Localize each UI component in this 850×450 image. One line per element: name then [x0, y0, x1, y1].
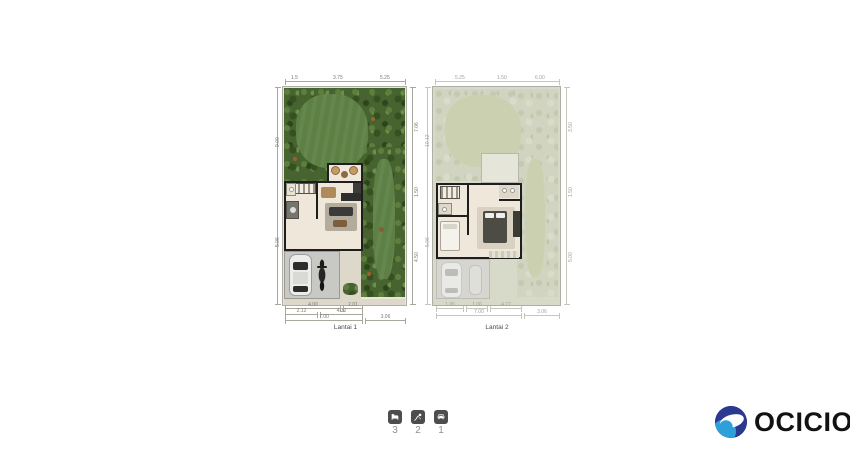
floorplan-canvas: 1.5 3.75 5.25 9.00 5.06 7.06 1.50 4.50 — [0, 0, 850, 450]
dimension-label: 1.06 — [472, 303, 482, 308]
dimension-label: 1.50 — [497, 76, 507, 81]
dimension-line: 2.12 — [285, 314, 318, 315]
sidewalk — [284, 299, 405, 305]
bathroom-count: 2 — [415, 426, 421, 436]
wardrobe — [513, 211, 520, 237]
dimension-line: 4.77 — [490, 308, 522, 309]
dimension-label: 1.5 — [291, 76, 298, 81]
dimension-label: 7.06 — [415, 122, 420, 132]
toilet — [510, 188, 515, 193]
toilet — [289, 187, 294, 192]
dimension-label: 5.00 — [569, 252, 574, 262]
sink — [502, 188, 507, 193]
dimension-line: 10.12 5.06 — [427, 87, 428, 305]
floorplan-lantai-2: 5.25 1.50 6.00 10.12 5.06 3.50 1.50 5.00 — [433, 81, 561, 341]
faded-car-rear-window — [445, 288, 458, 293]
plan-label-lantai-1: Lantai 1 — [283, 324, 408, 331]
logo-wordmark: OCICIO — [754, 409, 850, 436]
dimension-label: 3.06 — [537, 310, 547, 315]
brand-logo: OCICIO — [714, 405, 850, 439]
lawn — [296, 94, 368, 168]
bathroom-3 — [499, 185, 519, 198]
dimension-label: 6.00 — [535, 76, 545, 81]
feature-bedrooms: 3 — [388, 410, 402, 436]
car-windshield — [293, 262, 308, 270]
dimension-label: 1.50 — [569, 187, 574, 197]
carport-count: 1 — [438, 426, 444, 436]
car-roof — [293, 272, 308, 284]
floorplan-lantai-1: 1.5 3.75 5.25 9.00 5.06 7.06 1.50 4.50 — [283, 81, 408, 341]
pillow — [485, 213, 494, 218]
faded-car — [441, 262, 462, 298]
dimension-line: 1.5 3.75 5.25 — [285, 81, 406, 82]
dimension-line: 7.06 1.50 4.50 — [412, 87, 413, 305]
stairs — [440, 186, 460, 199]
garden-flower — [379, 227, 384, 232]
dimension-label: 5.06 — [276, 237, 281, 247]
site-plan-1 — [283, 87, 406, 305]
dimension-line: 3.50 1.50 5.00 — [566, 87, 567, 305]
dimension-line: 7.00 — [285, 320, 363, 321]
bedroom-count: 3 — [392, 426, 398, 436]
dimension-label: 5.06 — [426, 237, 431, 247]
dimension-label: 5.25 — [380, 76, 390, 81]
toilet — [442, 207, 447, 212]
balcony-deck — [489, 251, 519, 258]
garden-flower — [293, 157, 297, 161]
dimension-label: 9.00 — [276, 137, 281, 147]
property-features: 3 2 1 — [388, 410, 448, 436]
bed-double — [483, 211, 507, 243]
faded-vehicle — [469, 265, 482, 295]
garden-flower — [367, 272, 371, 276]
sofa — [329, 207, 353, 216]
feature-bathrooms: 2 — [411, 410, 425, 436]
roof-void-outline — [481, 153, 519, 183]
dimension-label: 1.95 — [445, 303, 455, 308]
dimension-label: 1.50 — [415, 187, 420, 197]
dimension-label: 2.12 — [297, 309, 307, 314]
car-rear-window — [293, 286, 308, 292]
car-icon — [434, 410, 448, 424]
dimension-line: 3.06 — [365, 320, 406, 321]
dimension-line: 5.25 1.50 6.00 — [435, 81, 560, 82]
dimension-line: 4.00 — [285, 308, 341, 309]
coffee-table — [333, 220, 347, 227]
kitchen-appliance — [353, 183, 361, 193]
bathroom — [286, 183, 296, 196]
dimension-label: 2.01 — [348, 303, 358, 308]
patio-chair — [349, 166, 358, 175]
dimension-line: 9.00 5.06 — [277, 87, 278, 305]
washer — [290, 207, 296, 213]
patio-table — [341, 171, 348, 178]
dimension-line: 7.00 — [436, 315, 522, 316]
dimension-line: 1.95 — [436, 308, 464, 309]
dimension-label: 7.00 — [319, 315, 329, 320]
dimension-label: 4.00 — [308, 303, 318, 308]
car-top-view — [289, 254, 312, 296]
dimension-label: 4.50 — [415, 252, 420, 262]
utility-room — [286, 201, 299, 219]
pillow — [496, 213, 505, 218]
site-plan-2 — [433, 87, 560, 305]
bathroom-2 — [438, 203, 452, 215]
dimension-label: 4.77 — [501, 303, 511, 308]
feature-carport: 1 — [434, 410, 448, 436]
logo-mark-icon — [714, 405, 748, 439]
motorcycle-top-view — [316, 257, 328, 293]
shower-icon — [411, 410, 425, 424]
dimension-label: 4.32 — [337, 309, 347, 314]
bed-single — [440, 221, 460, 251]
dimension-label: 3.06 — [381, 315, 391, 320]
dimension-label: 7.00 — [474, 310, 484, 315]
dimension-line: 3.06 — [524, 315, 560, 316]
plan-label-lantai-2: Lantai 2 — [433, 324, 561, 331]
interior-wall — [316, 181, 318, 219]
faded-lawn-strip — [525, 159, 545, 277]
interior-wall — [499, 199, 521, 201]
bed-icon — [388, 410, 402, 424]
interior-wall — [436, 215, 469, 217]
patio-chair — [331, 166, 340, 175]
pillow — [443, 224, 457, 229]
planter — [343, 283, 358, 295]
dining-table — [321, 187, 336, 198]
dimension-label: 3.75 — [333, 76, 343, 81]
faded-car-windshield — [445, 269, 458, 276]
dimension-label: 3.50 — [569, 122, 574, 132]
dimension-label: 10.12 — [426, 134, 431, 147]
interior-wall — [467, 183, 469, 235]
garden-flower — [371, 117, 375, 121]
dimension-label: 5.25 — [455, 76, 465, 81]
lawn-strip — [373, 159, 395, 279]
kitchen-counter — [341, 193, 361, 201]
